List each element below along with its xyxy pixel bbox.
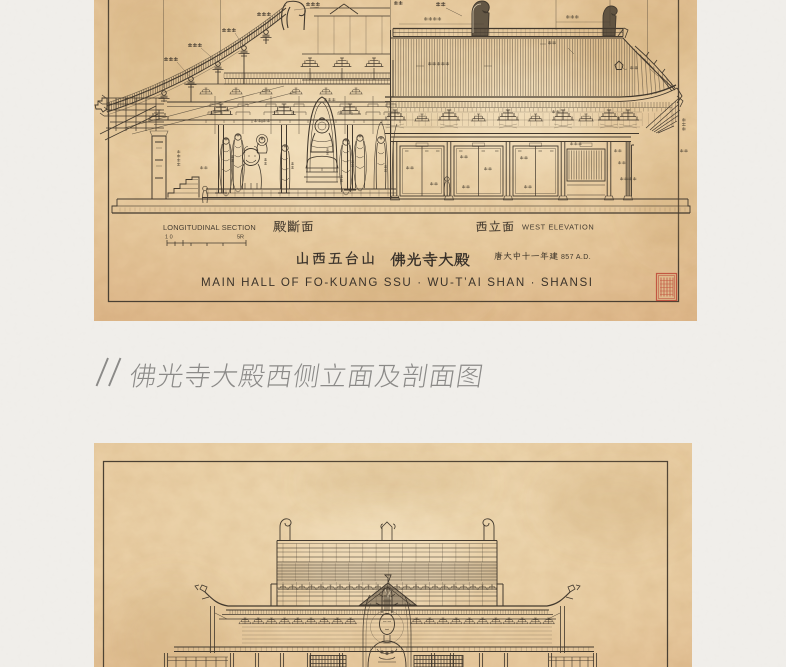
svg-text:1 0: 1 0: [165, 235, 173, 241]
svg-text:5R: 5R: [237, 235, 244, 241]
svg-text:WEST ELEVATION: WEST ELEVATION: [522, 223, 594, 232]
svg-text:MAIN HALL OF FO-KUANG SSU · WU: MAIN HALL OF FO-KUANG SSU · WU-T’AI SHAN…: [201, 276, 592, 289]
svg-text:857 A.D.: 857 A.D.: [561, 254, 591, 261]
svg-text:LONGITUDINAL SECTION: LONGITUDINAL SECTION: [163, 223, 256, 232]
